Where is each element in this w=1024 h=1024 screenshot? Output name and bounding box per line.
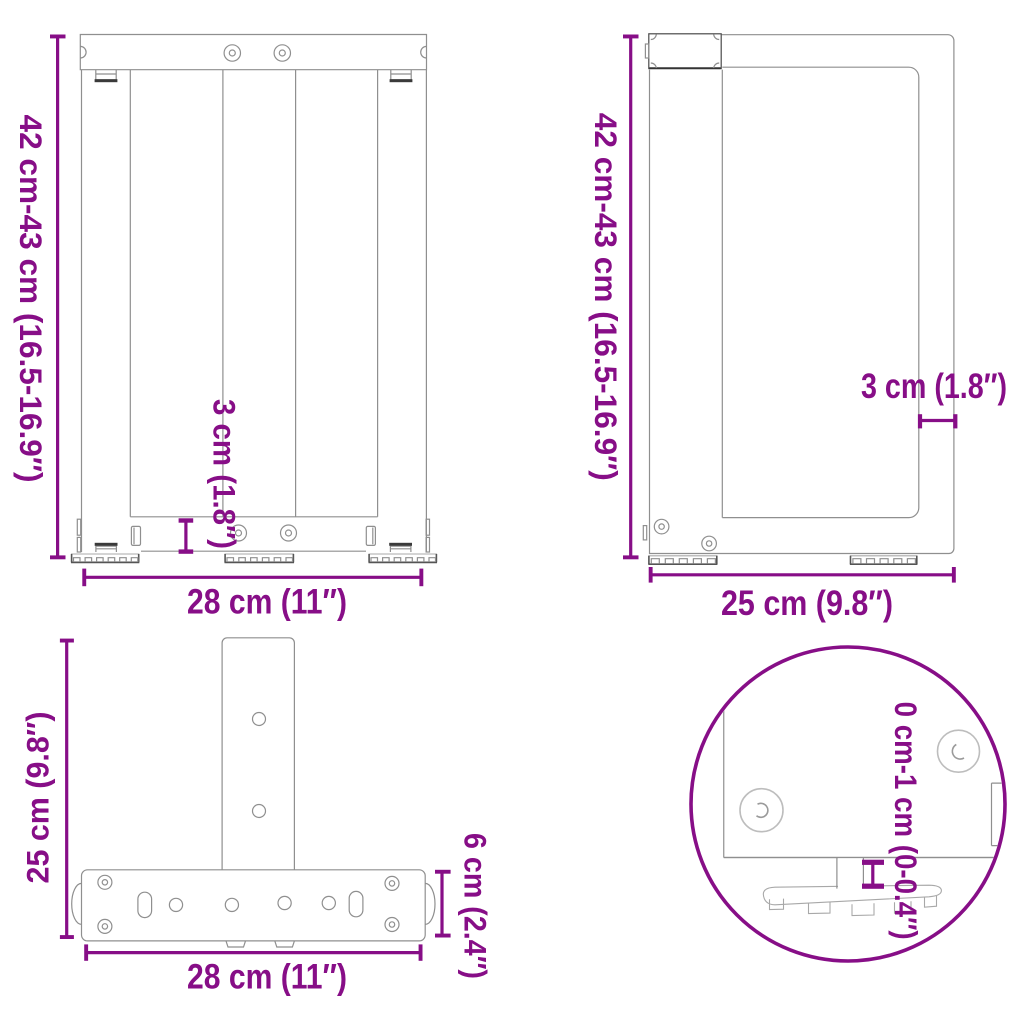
svg-text:28 cm (11″): 28 cm (11″) (187, 583, 347, 622)
svg-text:42 cm-43 cm (16.5-16.9″): 42 cm-43 cm (16.5-16.9″) (588, 113, 624, 481)
svg-text:42 cm-43 cm (16.5-16.9″): 42 cm-43 cm (16.5-16.9″) (13, 115, 49, 483)
svg-text:6 cm (2.4″): 6 cm (2.4″) (457, 833, 493, 979)
svg-text:25 cm (9.8″): 25 cm (9.8″) (721, 584, 893, 623)
svg-text:0 cm-1 cm (0-0.4″): 0 cm-1 cm (0-0.4″) (888, 702, 924, 940)
svg-text:28 cm (11″): 28 cm (11″) (187, 958, 347, 997)
svg-text:25 cm (9.8″): 25 cm (9.8″) (20, 712, 56, 884)
svg-text:3 cm (1.8″): 3 cm (1.8″) (206, 399, 242, 549)
svg-text:3 cm (1.8″): 3 cm (1.8″) (861, 367, 1007, 406)
